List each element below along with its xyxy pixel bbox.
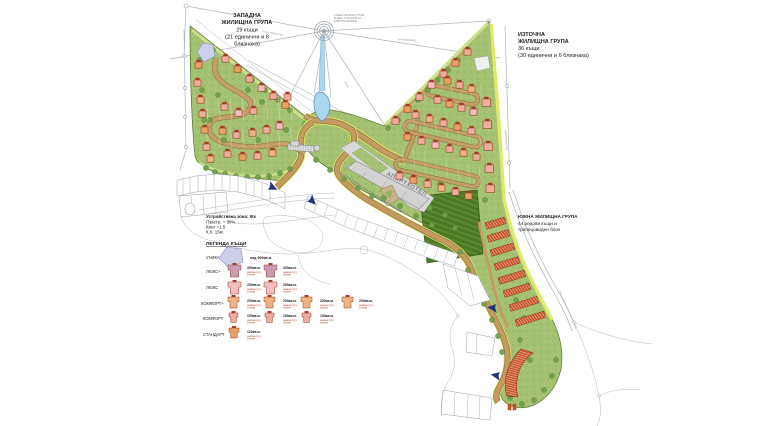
svg-text:ЛЮКС: ЛЮКС: [206, 285, 218, 290]
svg-text:44 редови къщи и: 44 редови къщи и: [518, 221, 557, 226]
svg-text:250кв.м.: 250кв.м.: [283, 283, 297, 287]
svg-text:спални: спални: [247, 291, 256, 294]
svg-text:(21 единични и 8: (21 единични и 8: [225, 35, 269, 41]
svg-text:КОМФОРТ: КОМФОРТ: [203, 316, 224, 321]
svg-text:ЛЮКС+: ЛЮКС+: [206, 269, 221, 274]
svg-text:200кв.м.: 200кв.м.: [283, 299, 297, 303]
svg-text:близнака): близнака): [234, 42, 260, 48]
svg-text:150кв.м.: 150кв.м.: [320, 314, 334, 318]
svg-text:ЖИЛИЩНА ГРУПА: ЖИЛИЩНА ГРУПА: [221, 20, 273, 26]
svg-text:ИЗТОЧНА: ИЗТОЧНА: [518, 32, 545, 38]
svg-text:К.К. 15м.: К.К. 15м.: [206, 230, 224, 235]
svg-text:спални: спални: [283, 274, 292, 277]
svg-text:150кв.м.: 150кв.м.: [283, 314, 297, 318]
svg-text:250кв.м.: 250кв.м.: [247, 283, 261, 287]
svg-text:ЮЖНА ЖИЛИЩНА ГРУПА: ЮЖНА ЖИЛИЩНА ГРУПА: [518, 214, 578, 219]
svg-text:спални: спални: [320, 322, 329, 325]
svg-text:спални: спални: [283, 322, 292, 325]
svg-text:ЗАПАДНА: ЗАПАДНА: [233, 13, 261, 19]
svg-text:200кв.м.: 200кв.м.: [320, 299, 334, 303]
svg-text:(30 единични и 6 близнака): (30 единични и 6 близнака): [518, 53, 589, 59]
svg-text:36 къщи: 36 къщи: [518, 46, 539, 52]
svg-text:СТАНДАРТ: СТАНДАРТ: [203, 332, 225, 337]
svg-text:спални: спални: [283, 307, 292, 310]
svg-text:Устройствена зона: Жк: Устройствена зона: Жк: [206, 214, 257, 219]
svg-text:над 500кв.м.: над 500кв.м.: [250, 256, 272, 260]
svg-text:трапецовиден блок: трапецовиден блок: [518, 227, 561, 232]
svg-text:спални: спални: [247, 274, 256, 277]
svg-text:КОМФОРТ+: КОМФОРТ+: [201, 301, 224, 306]
svg-text:спални: спални: [247, 322, 256, 325]
svg-text:29 къщи: 29 къщи: [236, 28, 257, 34]
svg-text:спални: спални: [247, 338, 256, 341]
svg-text:ЖИЛИЩНА ГРУПА: ЖИЛИЩНА ГРУПА: [517, 39, 569, 45]
svg-text:спални: спални: [247, 307, 256, 310]
svg-text:200кв.м.: 200кв.м.: [359, 299, 373, 303]
svg-text:ЛЕГЕНДА КЪЩИ: ЛЕГЕНДА КЪЩИ: [206, 241, 247, 247]
svg-text:спални: спални: [320, 307, 329, 310]
svg-text:200кв.м.: 200кв.м.: [247, 299, 261, 303]
svg-text:ЕЛЕКТРОПРОВОД: ЕЛЕКТРОПРОВОД: [334, 19, 357, 23]
svg-text:спални: спални: [359, 307, 368, 310]
svg-text:300кв.м.: 300кв.м.: [283, 266, 297, 270]
svg-text:150кв.м.: 150кв.м.: [247, 314, 261, 318]
svg-text:спални: спални: [283, 291, 292, 294]
svg-text:300кв.м.: 300кв.м.: [247, 266, 261, 270]
svg-text:120кв.м.: 120кв.м.: [247, 330, 261, 334]
